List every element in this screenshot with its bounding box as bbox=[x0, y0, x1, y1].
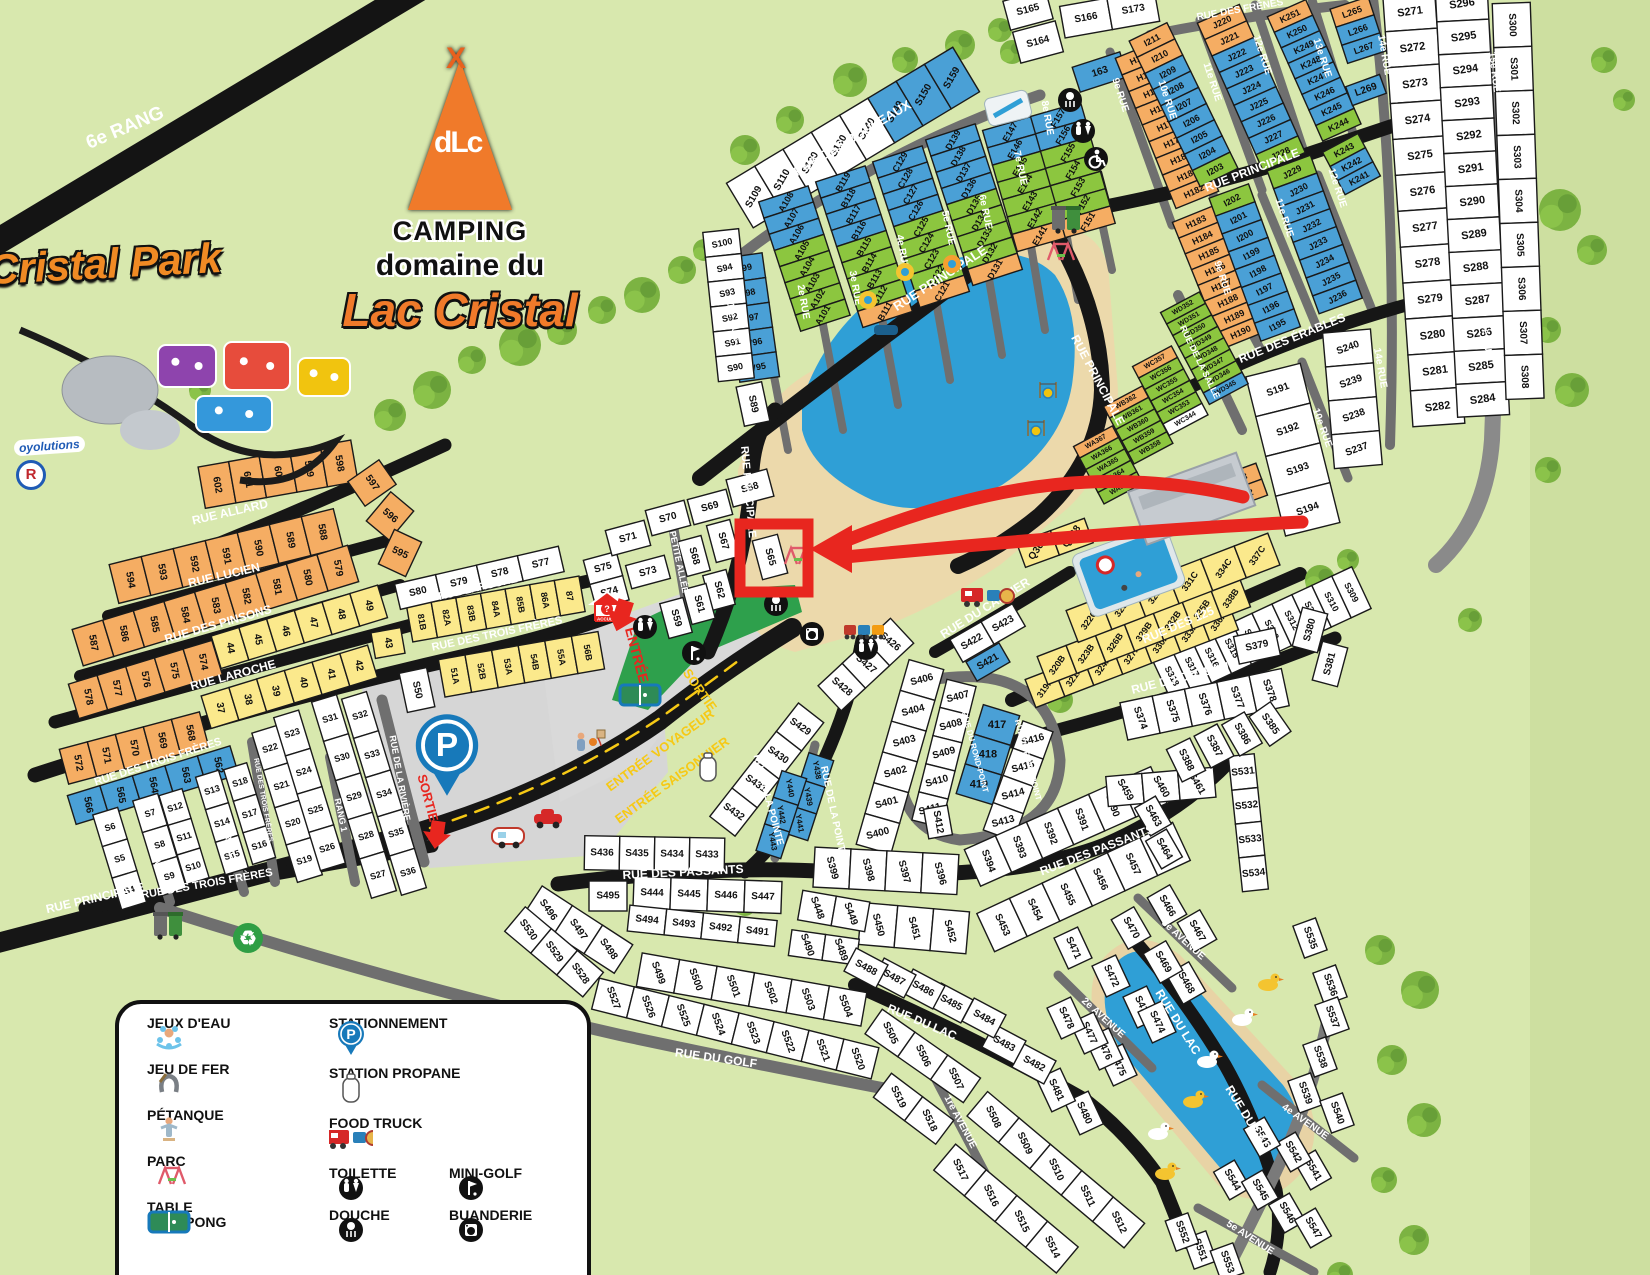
shower-icon bbox=[329, 1208, 373, 1252]
float-icon bbox=[896, 263, 914, 281]
lot-S504: S504 bbox=[823, 986, 866, 1026]
tree-icon bbox=[1547, 320, 1559, 332]
f bbox=[1172, 1165, 1174, 1167]
f bbox=[1071, 228, 1076, 233]
tree-icon bbox=[848, 67, 863, 82]
lot-label: S302 bbox=[1509, 101, 1521, 125]
lot-S446: S446 bbox=[707, 879, 745, 912]
swing-icon bbox=[147, 1154, 191, 1198]
mat-icon bbox=[874, 325, 898, 335]
wheelchair-icon bbox=[1084, 147, 1108, 171]
lot-S501: S501 bbox=[711, 966, 754, 1006]
laundry-icon bbox=[459, 1218, 483, 1242]
tree-icon bbox=[1535, 457, 1561, 483]
float-icon bbox=[859, 291, 877, 309]
lot-label: S306 bbox=[1515, 277, 1527, 301]
f bbox=[467, 1227, 475, 1235]
f bbox=[1055, 228, 1060, 233]
lot-label: S307 bbox=[1517, 321, 1529, 345]
toilet-icon bbox=[339, 1176, 363, 1200]
lot-label: S445 bbox=[677, 888, 701, 900]
f bbox=[1249, 1011, 1251, 1013]
lot-S239: S239 bbox=[1326, 363, 1377, 401]
lot-S502: S502 bbox=[749, 973, 792, 1013]
legend-item-stationnement: PSTATIONNEMENT bbox=[329, 1016, 447, 1031]
tree-icon bbox=[1623, 92, 1633, 102]
f bbox=[513, 842, 520, 849]
minigolf-icon bbox=[682, 641, 706, 665]
lot-S289: S289 bbox=[1447, 217, 1501, 253]
f bbox=[172, 1026, 178, 1032]
f bbox=[344, 1043, 358, 1055]
f bbox=[851, 635, 856, 640]
lot-S272: S272 bbox=[1385, 28, 1439, 68]
f bbox=[700, 757, 716, 781]
lot-S277: S277 bbox=[1398, 208, 1452, 248]
tree-icon bbox=[730, 135, 760, 165]
lot-S492: S492 bbox=[701, 913, 741, 943]
lot-S290: S290 bbox=[1446, 184, 1500, 220]
tree-icon bbox=[601, 300, 614, 313]
lot-S278: S278 bbox=[1400, 244, 1454, 284]
tree-icon bbox=[388, 403, 402, 417]
f bbox=[120, 410, 180, 450]
legend-item-douche: DOUCHE bbox=[329, 1208, 390, 1223]
f bbox=[541, 809, 554, 816]
shower-icon bbox=[339, 1218, 363, 1242]
f bbox=[597, 730, 605, 738]
tree-icon bbox=[624, 277, 660, 313]
tree-icon bbox=[1399, 1225, 1429, 1255]
green-right-band bbox=[1530, 0, 1650, 1275]
f bbox=[1086, 122, 1090, 126]
tree-icon bbox=[1577, 235, 1607, 265]
f bbox=[553, 822, 560, 829]
horseshoe-icon bbox=[147, 1062, 191, 1106]
tree-icon bbox=[668, 256, 696, 284]
lot-S398: S398 bbox=[849, 849, 887, 891]
lot-label: S301 bbox=[1508, 57, 1520, 81]
tree-icon bbox=[413, 371, 451, 409]
f bbox=[1031, 426, 1041, 436]
f bbox=[173, 934, 178, 939]
minigolf-icon bbox=[682, 641, 706, 665]
tree-icon bbox=[430, 376, 447, 393]
tree-icon bbox=[1613, 89, 1635, 111]
f bbox=[343, 1078, 359, 1102]
lot-S412: S412 bbox=[924, 805, 953, 839]
f bbox=[1067, 208, 1080, 230]
parkpin-icon: P bbox=[338, 1021, 364, 1055]
tree-icon bbox=[561, 319, 575, 333]
petanque-icon bbox=[147, 1108, 191, 1152]
lot-87: 87 bbox=[554, 576, 585, 616]
f bbox=[1161, 1123, 1170, 1132]
tree-icon bbox=[1570, 377, 1585, 392]
lot-S305: S305 bbox=[1500, 222, 1540, 267]
f bbox=[638, 622, 643, 631]
lot-S287: S287 bbox=[1451, 283, 1505, 319]
legend-item-station-propane: STATION PROPANE bbox=[329, 1066, 460, 1081]
f bbox=[873, 635, 878, 640]
toilet-icon bbox=[633, 615, 657, 639]
f bbox=[844, 625, 856, 635]
parkpin-icon: P bbox=[329, 1016, 373, 1060]
f bbox=[1051, 206, 1066, 210]
tree-icon bbox=[1422, 1107, 1437, 1122]
f bbox=[859, 643, 864, 652]
lot-S491: S491 bbox=[738, 917, 778, 947]
f bbox=[169, 914, 182, 936]
lot-S293: S293 bbox=[1440, 85, 1494, 121]
tree-icon bbox=[547, 315, 577, 345]
lot-S295: S295 bbox=[1437, 19, 1491, 55]
f bbox=[869, 639, 873, 643]
f bbox=[1076, 126, 1081, 135]
lot-label: S305 bbox=[1514, 233, 1526, 257]
f bbox=[330, 1143, 336, 1149]
lot-S307: S307 bbox=[1503, 310, 1543, 355]
lot-S94: S94 bbox=[705, 254, 743, 283]
f bbox=[1196, 1091, 1205, 1100]
f bbox=[1095, 150, 1100, 155]
f bbox=[1210, 1051, 1219, 1060]
f bbox=[157, 934, 162, 939]
propane-icon bbox=[329, 1066, 373, 1110]
lot-S306: S306 bbox=[1501, 266, 1541, 311]
f: ♻ bbox=[239, 928, 257, 950]
f bbox=[196, 396, 272, 432]
tree-icon bbox=[1539, 189, 1581, 231]
lot-label: S303 bbox=[1511, 145, 1523, 169]
tree-icon bbox=[1547, 460, 1559, 472]
f bbox=[974, 601, 980, 607]
tree-icon bbox=[833, 63, 867, 97]
lot-label: S304 bbox=[1512, 189, 1524, 213]
f bbox=[638, 618, 642, 622]
f bbox=[266, 362, 274, 370]
f bbox=[166, 1125, 172, 1137]
f bbox=[1165, 1125, 1167, 1127]
lot-S499: S499 bbox=[636, 953, 679, 993]
f bbox=[240, 357, 248, 365]
legend-item-jeux-d-eau: JEUX D'EAU bbox=[147, 1016, 230, 1031]
lot-S436: S436 bbox=[584, 836, 620, 871]
tree-icon bbox=[1458, 608, 1482, 632]
f bbox=[347, 1222, 355, 1230]
tree-icon bbox=[588, 296, 616, 324]
f bbox=[157, 1037, 163, 1043]
minigolf-icon bbox=[459, 1176, 483, 1200]
lot-S308: S308 bbox=[1505, 354, 1545, 399]
lot-S303: S303 bbox=[1497, 134, 1537, 179]
f bbox=[864, 296, 872, 304]
tree-icon bbox=[1591, 47, 1617, 73]
lot-S534: S534 bbox=[1239, 855, 1268, 892]
foodtrucks-icon bbox=[329, 1130, 373, 1149]
toilet-icon bbox=[854, 636, 878, 660]
f bbox=[578, 733, 585, 740]
lot-S288: S288 bbox=[1449, 250, 1503, 286]
horseshoe-icon bbox=[160, 1074, 177, 1092]
f bbox=[154, 914, 167, 936]
lot-label: 417 bbox=[988, 719, 1006, 731]
lot-S396: S396 bbox=[921, 853, 959, 895]
laundry-icon bbox=[800, 622, 824, 646]
lot-S276: S276 bbox=[1395, 172, 1449, 212]
splash-icon bbox=[147, 1016, 191, 1060]
tree-icon bbox=[1591, 239, 1605, 253]
f bbox=[865, 635, 870, 640]
f bbox=[215, 406, 223, 414]
tree-icon bbox=[904, 50, 916, 62]
tree-icon bbox=[789, 110, 802, 123]
f bbox=[859, 639, 863, 643]
legend-item-food-truck: FOOD TRUCK bbox=[329, 1116, 422, 1131]
f bbox=[344, 1179, 348, 1183]
lot-S495: S495 bbox=[589, 881, 627, 911]
tree-icon bbox=[1603, 50, 1615, 62]
lot-S444: S444 bbox=[633, 876, 671, 909]
f bbox=[1000, 589, 1014, 603]
legend-item-mini-golf: MINI-GOLF bbox=[449, 1166, 522, 1181]
legend-item-buanderie: BUANDERIE bbox=[449, 1208, 532, 1223]
lot-S271: S271 bbox=[1383, 0, 1437, 32]
lot-S284: S284 bbox=[1456, 382, 1510, 418]
f bbox=[577, 739, 585, 751]
lot-S435: S435 bbox=[619, 836, 655, 871]
lot-label: S444 bbox=[640, 887, 664, 899]
tree-icon bbox=[1469, 611, 1480, 622]
f bbox=[1275, 976, 1277, 978]
lot-S285: S285 bbox=[1454, 349, 1508, 385]
lot-label: S435 bbox=[625, 848, 649, 859]
tree-icon bbox=[1379, 939, 1393, 953]
f bbox=[310, 369, 318, 377]
lot-label: S447 bbox=[751, 891, 775, 903]
propane-icon bbox=[343, 1074, 359, 1102]
f bbox=[160, 1026, 166, 1032]
lot-S279: S279 bbox=[1403, 280, 1457, 320]
legend-item-jeu-de-fer: JEU DE FER bbox=[147, 1062, 229, 1077]
f bbox=[224, 342, 290, 390]
f bbox=[353, 1132, 366, 1143]
toilet-icon bbox=[1071, 119, 1095, 143]
tree-icon bbox=[1383, 1170, 1395, 1182]
f bbox=[696, 657, 699, 660]
map-legend: JEUX D'EAUJEU DE FERPÉTANQUEPARCTABLE PI… bbox=[115, 1000, 591, 1275]
tree-icon bbox=[1401, 971, 1439, 1009]
f bbox=[171, 358, 179, 366]
tree-icon bbox=[959, 34, 973, 48]
f bbox=[807, 629, 809, 631]
f bbox=[163, 1138, 175, 1141]
lot-S240: S240 bbox=[1323, 329, 1374, 367]
tree-icon bbox=[1371, 1167, 1397, 1193]
toilet-icon bbox=[329, 1166, 373, 1210]
lot-S280: S280 bbox=[1405, 315, 1459, 355]
f bbox=[168, 912, 183, 916]
lot-S459: S459 bbox=[1106, 773, 1144, 806]
toilet-icon bbox=[339, 1176, 363, 1200]
tree-icon bbox=[518, 329, 537, 348]
lot-S449: S449 bbox=[831, 896, 870, 931]
lot-S500: S500 bbox=[674, 960, 717, 1000]
lot-S445: S445 bbox=[670, 878, 708, 911]
tree-icon bbox=[1418, 976, 1435, 993]
f bbox=[195, 362, 203, 370]
lot-S296: S296 bbox=[1435, 0, 1489, 22]
f bbox=[366, 1131, 373, 1145]
f bbox=[347, 1074, 355, 1079]
f bbox=[872, 625, 884, 635]
lot-S238: S238 bbox=[1329, 397, 1380, 435]
lot-label: S308 bbox=[1518, 365, 1530, 389]
f bbox=[298, 358, 350, 396]
campground-map: S109S110S120S130S140S149S150S159S164S165… bbox=[0, 0, 1650, 1275]
pingpong-icon bbox=[149, 1212, 189, 1232]
f: P bbox=[346, 1026, 355, 1042]
lot-S275: S275 bbox=[1393, 136, 1447, 176]
tree-icon bbox=[1337, 549, 1359, 571]
lot-S531: S531 bbox=[1228, 754, 1257, 791]
lot-S503: S503 bbox=[786, 979, 829, 1019]
lot-S533: S533 bbox=[1235, 821, 1264, 858]
tree-icon bbox=[374, 399, 406, 431]
f bbox=[245, 410, 253, 418]
f bbox=[901, 268, 909, 276]
f bbox=[589, 738, 597, 746]
f bbox=[858, 625, 870, 635]
tree-icon bbox=[1413, 1229, 1427, 1243]
toilet-icon bbox=[1071, 119, 1095, 143]
lot-S304: S304 bbox=[1498, 178, 1538, 223]
swing-icon bbox=[159, 1168, 185, 1184]
toilet-icon bbox=[633, 615, 657, 639]
lot-label: S434 bbox=[660, 849, 684, 860]
laundry-icon bbox=[449, 1208, 493, 1252]
legend-item-toilette: TOILETTE bbox=[329, 1166, 396, 1181]
lot-label: S495 bbox=[596, 891, 620, 902]
f bbox=[1200, 1093, 1202, 1095]
f bbox=[344, 1183, 349, 1192]
legend-item-parc: PARC bbox=[147, 1154, 186, 1169]
f bbox=[643, 693, 647, 697]
f bbox=[1076, 122, 1080, 126]
f bbox=[859, 635, 864, 640]
f bbox=[537, 822, 544, 829]
f bbox=[879, 635, 884, 640]
f bbox=[1066, 92, 1074, 100]
f bbox=[340, 1143, 346, 1149]
f bbox=[1214, 1053, 1216, 1055]
splash-icon bbox=[157, 1026, 181, 1049]
f bbox=[1271, 974, 1280, 983]
f bbox=[704, 753, 712, 758]
lot-S448: S448 bbox=[798, 890, 837, 925]
f bbox=[172, 1220, 176, 1224]
f bbox=[158, 345, 216, 387]
lot-S273: S273 bbox=[1388, 64, 1442, 104]
lot-S493: S493 bbox=[664, 909, 704, 939]
lot-label: S300 bbox=[1506, 13, 1518, 37]
f bbox=[648, 618, 652, 622]
tree-icon bbox=[1391, 1049, 1405, 1063]
tree-icon bbox=[1365, 935, 1395, 965]
f: P bbox=[436, 727, 458, 764]
recycle-icon: ♻ bbox=[233, 923, 263, 953]
lot-label: S446 bbox=[714, 890, 738, 902]
petanque-icon bbox=[161, 1117, 177, 1141]
lot-S452: S452 bbox=[930, 909, 970, 954]
lot-S302: S302 bbox=[1495, 90, 1535, 135]
f bbox=[965, 591, 972, 596]
lot-S294: S294 bbox=[1439, 52, 1493, 88]
lot-S274: S274 bbox=[1390, 100, 1444, 140]
tree-icon bbox=[1377, 1045, 1407, 1075]
f bbox=[948, 260, 956, 268]
lot-S90: S90 bbox=[716, 353, 754, 382]
f bbox=[1245, 1009, 1254, 1018]
f bbox=[964, 601, 970, 607]
partner-badge: R bbox=[16, 460, 46, 490]
f bbox=[987, 590, 1000, 601]
toilet-icon bbox=[854, 636, 878, 660]
lot-S300: S300 bbox=[1492, 2, 1532, 47]
f bbox=[175, 1037, 181, 1043]
f bbox=[874, 325, 898, 335]
f bbox=[331, 1133, 338, 1138]
tree-icon bbox=[1347, 552, 1357, 562]
f bbox=[466, 1225, 468, 1227]
f bbox=[473, 1192, 476, 1195]
tree-icon bbox=[471, 350, 484, 363]
tree-icon bbox=[1555, 373, 1589, 407]
f bbox=[159, 1168, 185, 1184]
tree-icon bbox=[640, 282, 656, 298]
tree-icon bbox=[499, 324, 541, 366]
pingpong-icon bbox=[147, 1200, 191, 1244]
lot-S460: S460 bbox=[1142, 770, 1180, 803]
f bbox=[1052, 208, 1065, 230]
tree-icon bbox=[1558, 194, 1577, 213]
tree-icon bbox=[892, 47, 918, 73]
lot-43: 43 bbox=[371, 628, 405, 659]
lot-S451: S451 bbox=[894, 906, 934, 951]
foodtrucks-icon bbox=[329, 1116, 373, 1160]
lot-label: 87 bbox=[564, 590, 576, 602]
pingpong-icon bbox=[620, 685, 660, 705]
lot-S100: S100 bbox=[703, 229, 741, 258]
f bbox=[153, 912, 168, 916]
lot-S397: S397 bbox=[885, 851, 923, 893]
f bbox=[1066, 206, 1081, 210]
lot-S494: S494 bbox=[627, 905, 667, 935]
f bbox=[1168, 1163, 1177, 1172]
lot-S237: S237 bbox=[1331, 431, 1382, 469]
legend-item-p-tanque: PÉTANQUE bbox=[147, 1108, 224, 1123]
legend-item-table-ping-pong: TABLE PING PONG bbox=[147, 1200, 226, 1230]
lot-S490: S490 bbox=[788, 930, 825, 961]
minigolf-icon bbox=[459, 1176, 483, 1200]
f bbox=[1043, 388, 1053, 398]
shower-icon bbox=[1058, 88, 1082, 112]
tree-icon bbox=[744, 139, 758, 153]
float-icon bbox=[943, 255, 961, 273]
tree-icon bbox=[1407, 1103, 1441, 1137]
lot-S447: S447 bbox=[744, 880, 782, 913]
f bbox=[492, 828, 524, 844]
